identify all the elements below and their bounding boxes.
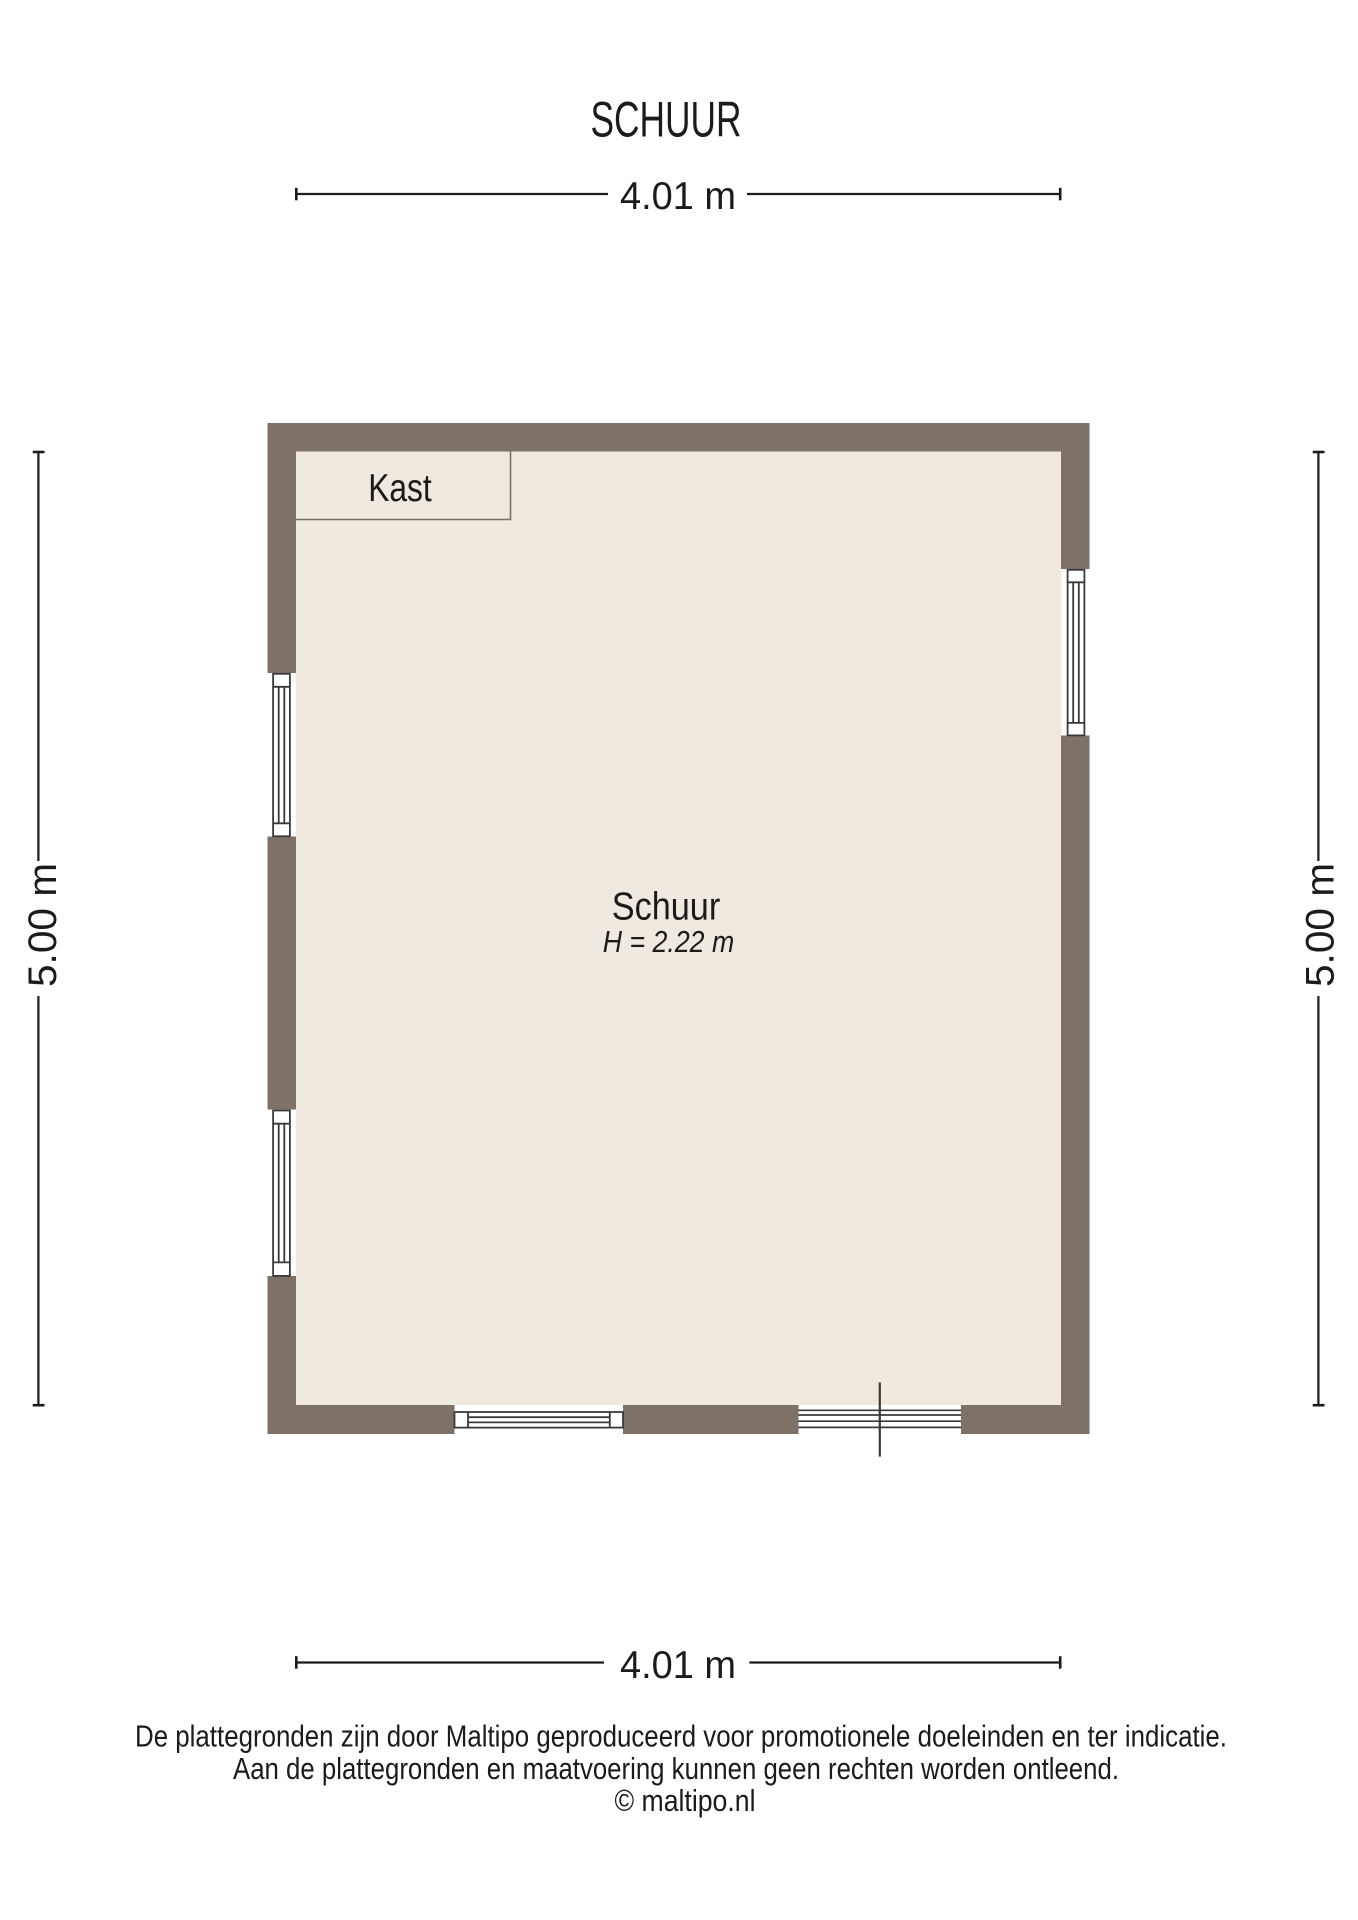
svg-text:4.01 m: 4.01 m xyxy=(620,1644,736,1687)
svg-text:Schuur: Schuur xyxy=(612,886,721,929)
svg-text:4.01 m: 4.01 m xyxy=(620,175,736,218)
svg-text:5.00 m: 5.00 m xyxy=(1298,863,1342,987)
svg-text:H = 2.22 m: H = 2.22 m xyxy=(603,926,735,959)
svg-text:Kast: Kast xyxy=(368,467,432,510)
svg-text:5.00 m: 5.00 m xyxy=(21,863,65,987)
svg-text:Aan de plattegronden en maatvo: Aan de plattegronden en maatvoering kunn… xyxy=(233,1752,1119,1786)
svg-text:SCHUUR: SCHUUR xyxy=(591,92,742,148)
svg-text:© maltipo.nl: © maltipo.nl xyxy=(615,1784,756,1818)
svg-text:De plattegronden zijn door Mal: De plattegronden zijn door Maltipo gepro… xyxy=(135,1720,1227,1754)
